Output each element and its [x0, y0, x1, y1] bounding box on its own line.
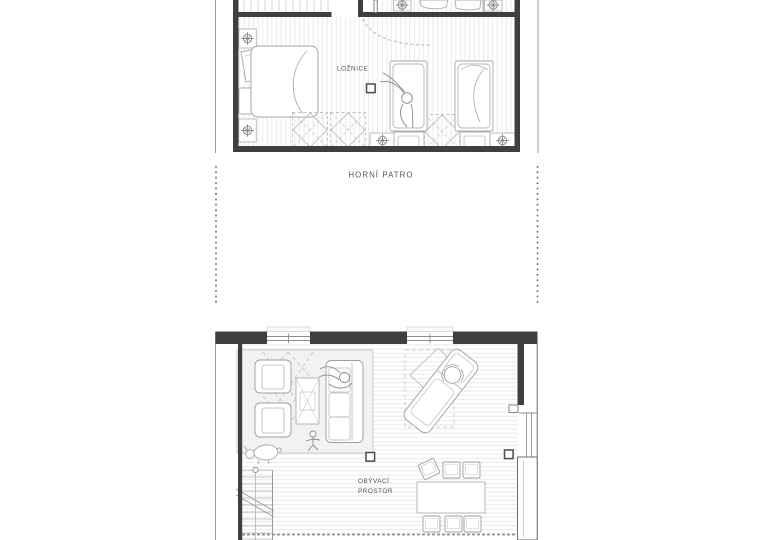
- wall-switch-icon: [366, 453, 375, 462]
- partition-wall: [374, 0, 377, 13]
- wall: [239, 12, 332, 17]
- wall: [358, 0, 363, 17]
- mattress: [251, 46, 318, 117]
- armchair: [255, 403, 291, 437]
- floor-plan-page: LOŽNICE HORNÍ PATRO: [0, 0, 760, 540]
- room-label-loznice: LOŽNICE: [337, 64, 369, 73]
- wall: [453, 332, 538, 345]
- window-lintel: [407, 327, 453, 332]
- lower-floor-plan: OBÝVACÍ PROSTOR: [216, 327, 538, 540]
- ceiling-light-fixture: [490, 133, 515, 148]
- wall: [216, 332, 268, 345]
- ceiling-light-fixture: [239, 29, 256, 48]
- section-between-floors: HORNÍ PATRO: [216, 166, 538, 306]
- floor-title: HORNÍ PATRO: [348, 171, 413, 180]
- stair-direction-icon: [253, 467, 258, 472]
- wall: [233, 0, 239, 152]
- wall: [363, 12, 515, 17]
- ceiling-light-fixture: [394, 0, 412, 11]
- upper-floor-plan: LOŽNICE: [216, 0, 539, 153]
- wall-notch: [509, 405, 518, 413]
- window: [267, 334, 310, 344]
- dining-chair: [423, 516, 440, 532]
- ceiling-light-fixture: [485, 0, 503, 11]
- floor-plan-drawing: LOŽNICE HORNÍ PATRO: [0, 0, 760, 540]
- dining-chair: [445, 516, 462, 532]
- room-label-obyvaci-line1: OBÝVACÍ: [358, 476, 389, 485]
- window: [519, 413, 537, 457]
- wall: [518, 457, 538, 540]
- ceiling-light-fixture: [370, 133, 395, 148]
- wall: [310, 332, 407, 345]
- room-label-obyvaci-line2: PROSTOR: [358, 488, 393, 495]
- wall-switch-icon: [367, 84, 376, 93]
- dining-chair: [463, 462, 480, 478]
- window: [407, 334, 453, 344]
- dining-chair: [443, 462, 460, 478]
- ceiling-light-fixture: [239, 119, 256, 142]
- armchair: [255, 360, 291, 393]
- dining-chair: [464, 516, 481, 532]
- double-bed: [239, 46, 318, 117]
- window-lintel: [267, 327, 310, 332]
- wall: [515, 0, 521, 152]
- wall-switch-icon: [505, 450, 514, 459]
- wall: [238, 344, 242, 540]
- upper-staircase: [244, 0, 328, 11]
- single-bed-2: [455, 61, 493, 150]
- dining-table: [417, 482, 485, 513]
- wall: [518, 344, 525, 405]
- wall: [233, 146, 520, 152]
- coffee-table: [296, 378, 319, 424]
